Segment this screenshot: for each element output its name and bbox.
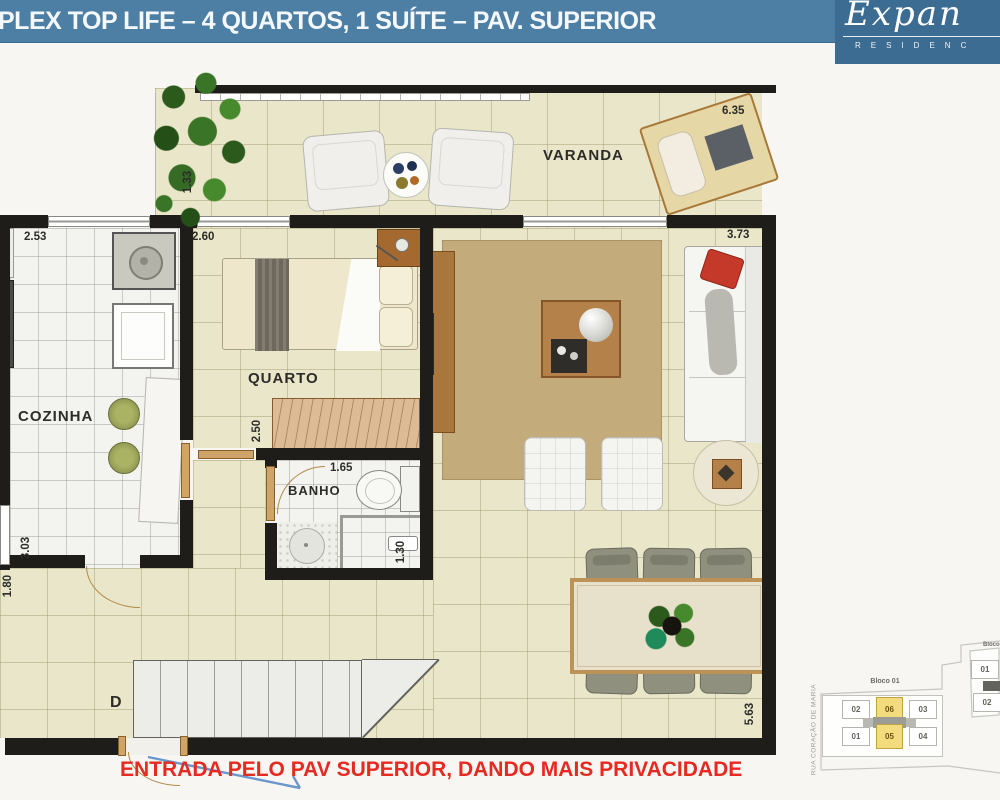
pouf-symbol <box>524 437 586 511</box>
bloco2-label: Bloco <box>983 642 1000 648</box>
measure-sala-width: 3.73 <box>727 229 749 241</box>
unit-cell: 02 <box>973 693 1000 712</box>
nightstand-symbol <box>377 229 425 267</box>
logo-script-text: Expan <box>845 0 963 34</box>
pouf-symbol <box>601 437 663 511</box>
stairs-edge <box>362 659 439 660</box>
logo-subtitle: RESIDENC <box>855 41 976 50</box>
varanda-top-wall <box>195 85 776 93</box>
stairs-label: D <box>110 694 123 712</box>
toilet-bowl-symbol <box>356 470 402 510</box>
street-name: RUA CORAÇÃO DE MARIA <box>811 674 818 786</box>
entry-door-jamb <box>118 736 126 756</box>
banho-label: BANHO <box>288 483 341 498</box>
unit-cell: 04 <box>909 727 937 746</box>
centerpiece-plant-symbol <box>640 594 704 658</box>
keyplan-bloco2: Bloco 01 02 <box>955 640 1000 730</box>
stool-symbol <box>108 442 140 474</box>
wall <box>667 215 776 228</box>
unit-cell: 03 <box>909 700 937 719</box>
unit-cell: 01 <box>971 660 999 679</box>
cozinha-window <box>48 216 150 227</box>
unit-cell-highlighted: 05 <box>876 724 903 749</box>
measure-varanda-width: 6.35 <box>722 105 744 117</box>
stove-symbol <box>112 232 176 290</box>
bloco1-label: Bloco 01 <box>850 678 920 685</box>
toilet-tank-symbol <box>400 466 420 512</box>
kitchen-counter-symbol <box>138 377 186 524</box>
right-wall <box>762 215 776 755</box>
measure-cozinha-depth: 3.03 <box>20 530 32 566</box>
varanda-armchair-1 <box>302 130 390 213</box>
wardrobe-symbol <box>272 398 420 452</box>
cozinha-quarto-wall <box>180 228 193 440</box>
core-tab <box>863 718 873 727</box>
quarto-sala-wall <box>420 228 433 580</box>
bottom-wall <box>5 738 125 755</box>
kitchen-sink-symbol <box>112 303 174 369</box>
cozinha-bottom-wall <box>0 555 85 568</box>
core-symbol <box>983 681 1000 691</box>
banho-door-leaf <box>266 466 275 521</box>
left-wall-door <box>0 505 10 565</box>
measure-entry-width: 1.80 <box>2 568 14 604</box>
stairs-symbol <box>133 660 362 738</box>
quarto-banho-wall <box>256 448 433 460</box>
keyplan-bloco1: Bloco 01 02 06 03 01 05 04 <box>820 678 950 762</box>
measure-banho-width: 1.65 <box>330 462 352 474</box>
measure-sala-depth: 5.63 <box>744 696 756 732</box>
measure-quarto-closet: 2.50 <box>251 413 263 449</box>
unit-cell: 02 <box>842 700 870 719</box>
page-title: PLEX TOP LIFE – 4 QUARTOS, 1 SUÍTE – PAV… <box>0 7 656 36</box>
quarto-label: QUARTO <box>248 370 319 387</box>
entry-note: ENTRADA PELO PAV SUPERIOR, DANDO MAIS PR… <box>120 758 760 782</box>
cozinha-door-leaf <box>181 443 190 498</box>
measure-banho-depth: 1.30 <box>395 534 407 570</box>
shower-partition <box>340 515 343 568</box>
plant-symbol <box>140 66 260 238</box>
core-tab <box>906 718 916 727</box>
stool-symbol <box>108 398 140 430</box>
slide: PLEX TOP LIFE – 4 QUARTOS, 1 SUÍTE – PAV… <box>0 0 1000 800</box>
corridor-floor <box>193 460 265 570</box>
side-table-symbol <box>693 440 759 506</box>
varanda-label: VARANDA <box>543 147 624 164</box>
banho-wall <box>265 523 277 568</box>
measure-cozinha-width: 2.53 <box>24 231 46 243</box>
wall <box>290 215 523 228</box>
quarto-door-leaf <box>198 450 254 459</box>
developer-logo: Expan RESIDENC <box>835 0 1000 64</box>
throw-blanket-symbol <box>704 288 738 376</box>
varanda-armchair-2 <box>427 127 514 211</box>
sala-window <box>523 216 667 227</box>
shower-area-symbol <box>277 522 337 568</box>
measure-varanda-depth: 1.33 <box>182 164 194 200</box>
cozinha-label: COZINHA <box>18 408 93 425</box>
sofa-symbol <box>684 246 764 442</box>
measure-quarto-width: 2.60 <box>192 231 214 243</box>
red-pillow-symbol <box>699 248 745 290</box>
unit-cell: 01 <box>842 727 870 746</box>
bed-symbol <box>222 258 418 350</box>
coffee-table-symbol <box>541 300 621 378</box>
varanda-table-symbol <box>383 152 429 198</box>
cozinha-bottom-wall <box>140 555 193 568</box>
logo-divider <box>843 36 1000 37</box>
